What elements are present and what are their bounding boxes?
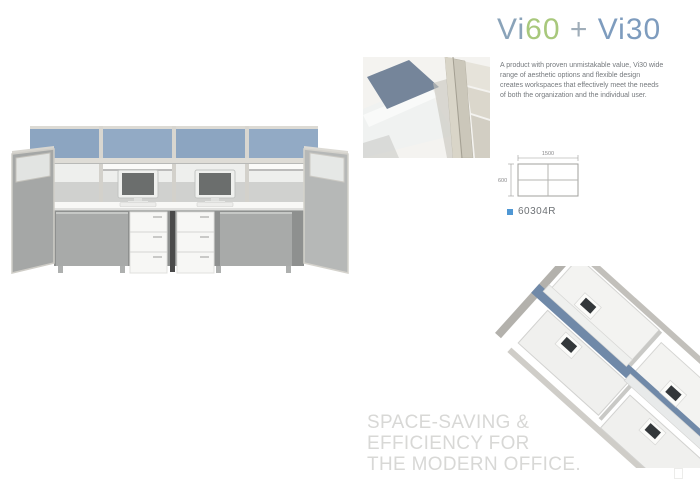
tagline: SPACE-SAVING & EFFICIENCY FOR THE MODERN… (367, 412, 581, 475)
bullet-square-icon (507, 209, 513, 215)
title-plus: + (561, 13, 598, 46)
page-title: Vi60 + Vi30 (497, 13, 661, 47)
title-vi30: Vi30 (598, 13, 662, 46)
page-corner-mark (674, 468, 683, 479)
product-code-row: 60304R (507, 206, 556, 217)
catalog-page: Vi60 + Vi30 A product with proven unmist… (0, 0, 700, 495)
plan-diagram: 1500 600 (498, 148, 590, 206)
tagline-line-1: SPACE-SAVING & (367, 412, 581, 433)
dimension-depth-label: 600 (498, 178, 507, 184)
dimension-width-label: 1500 (542, 151, 554, 157)
tagline-line-3: THE MODERN OFFICE. (367, 454, 581, 475)
panel-detail-photo (363, 57, 490, 158)
title-vi60-number: 60 (525, 13, 560, 46)
title-vi60-prefix: Vi (497, 13, 525, 46)
product-code: 60304R (518, 206, 556, 217)
tagline-line-2: EFFICIENCY FOR (367, 433, 581, 454)
plan-diagram-drawing: 1500 600 (498, 148, 590, 206)
main-product-photo (8, 118, 352, 280)
main-product-photo-drawing (8, 118, 352, 280)
panel-detail-drawing (363, 57, 490, 158)
product-description: A product with proven unmistakable value… (500, 61, 664, 101)
